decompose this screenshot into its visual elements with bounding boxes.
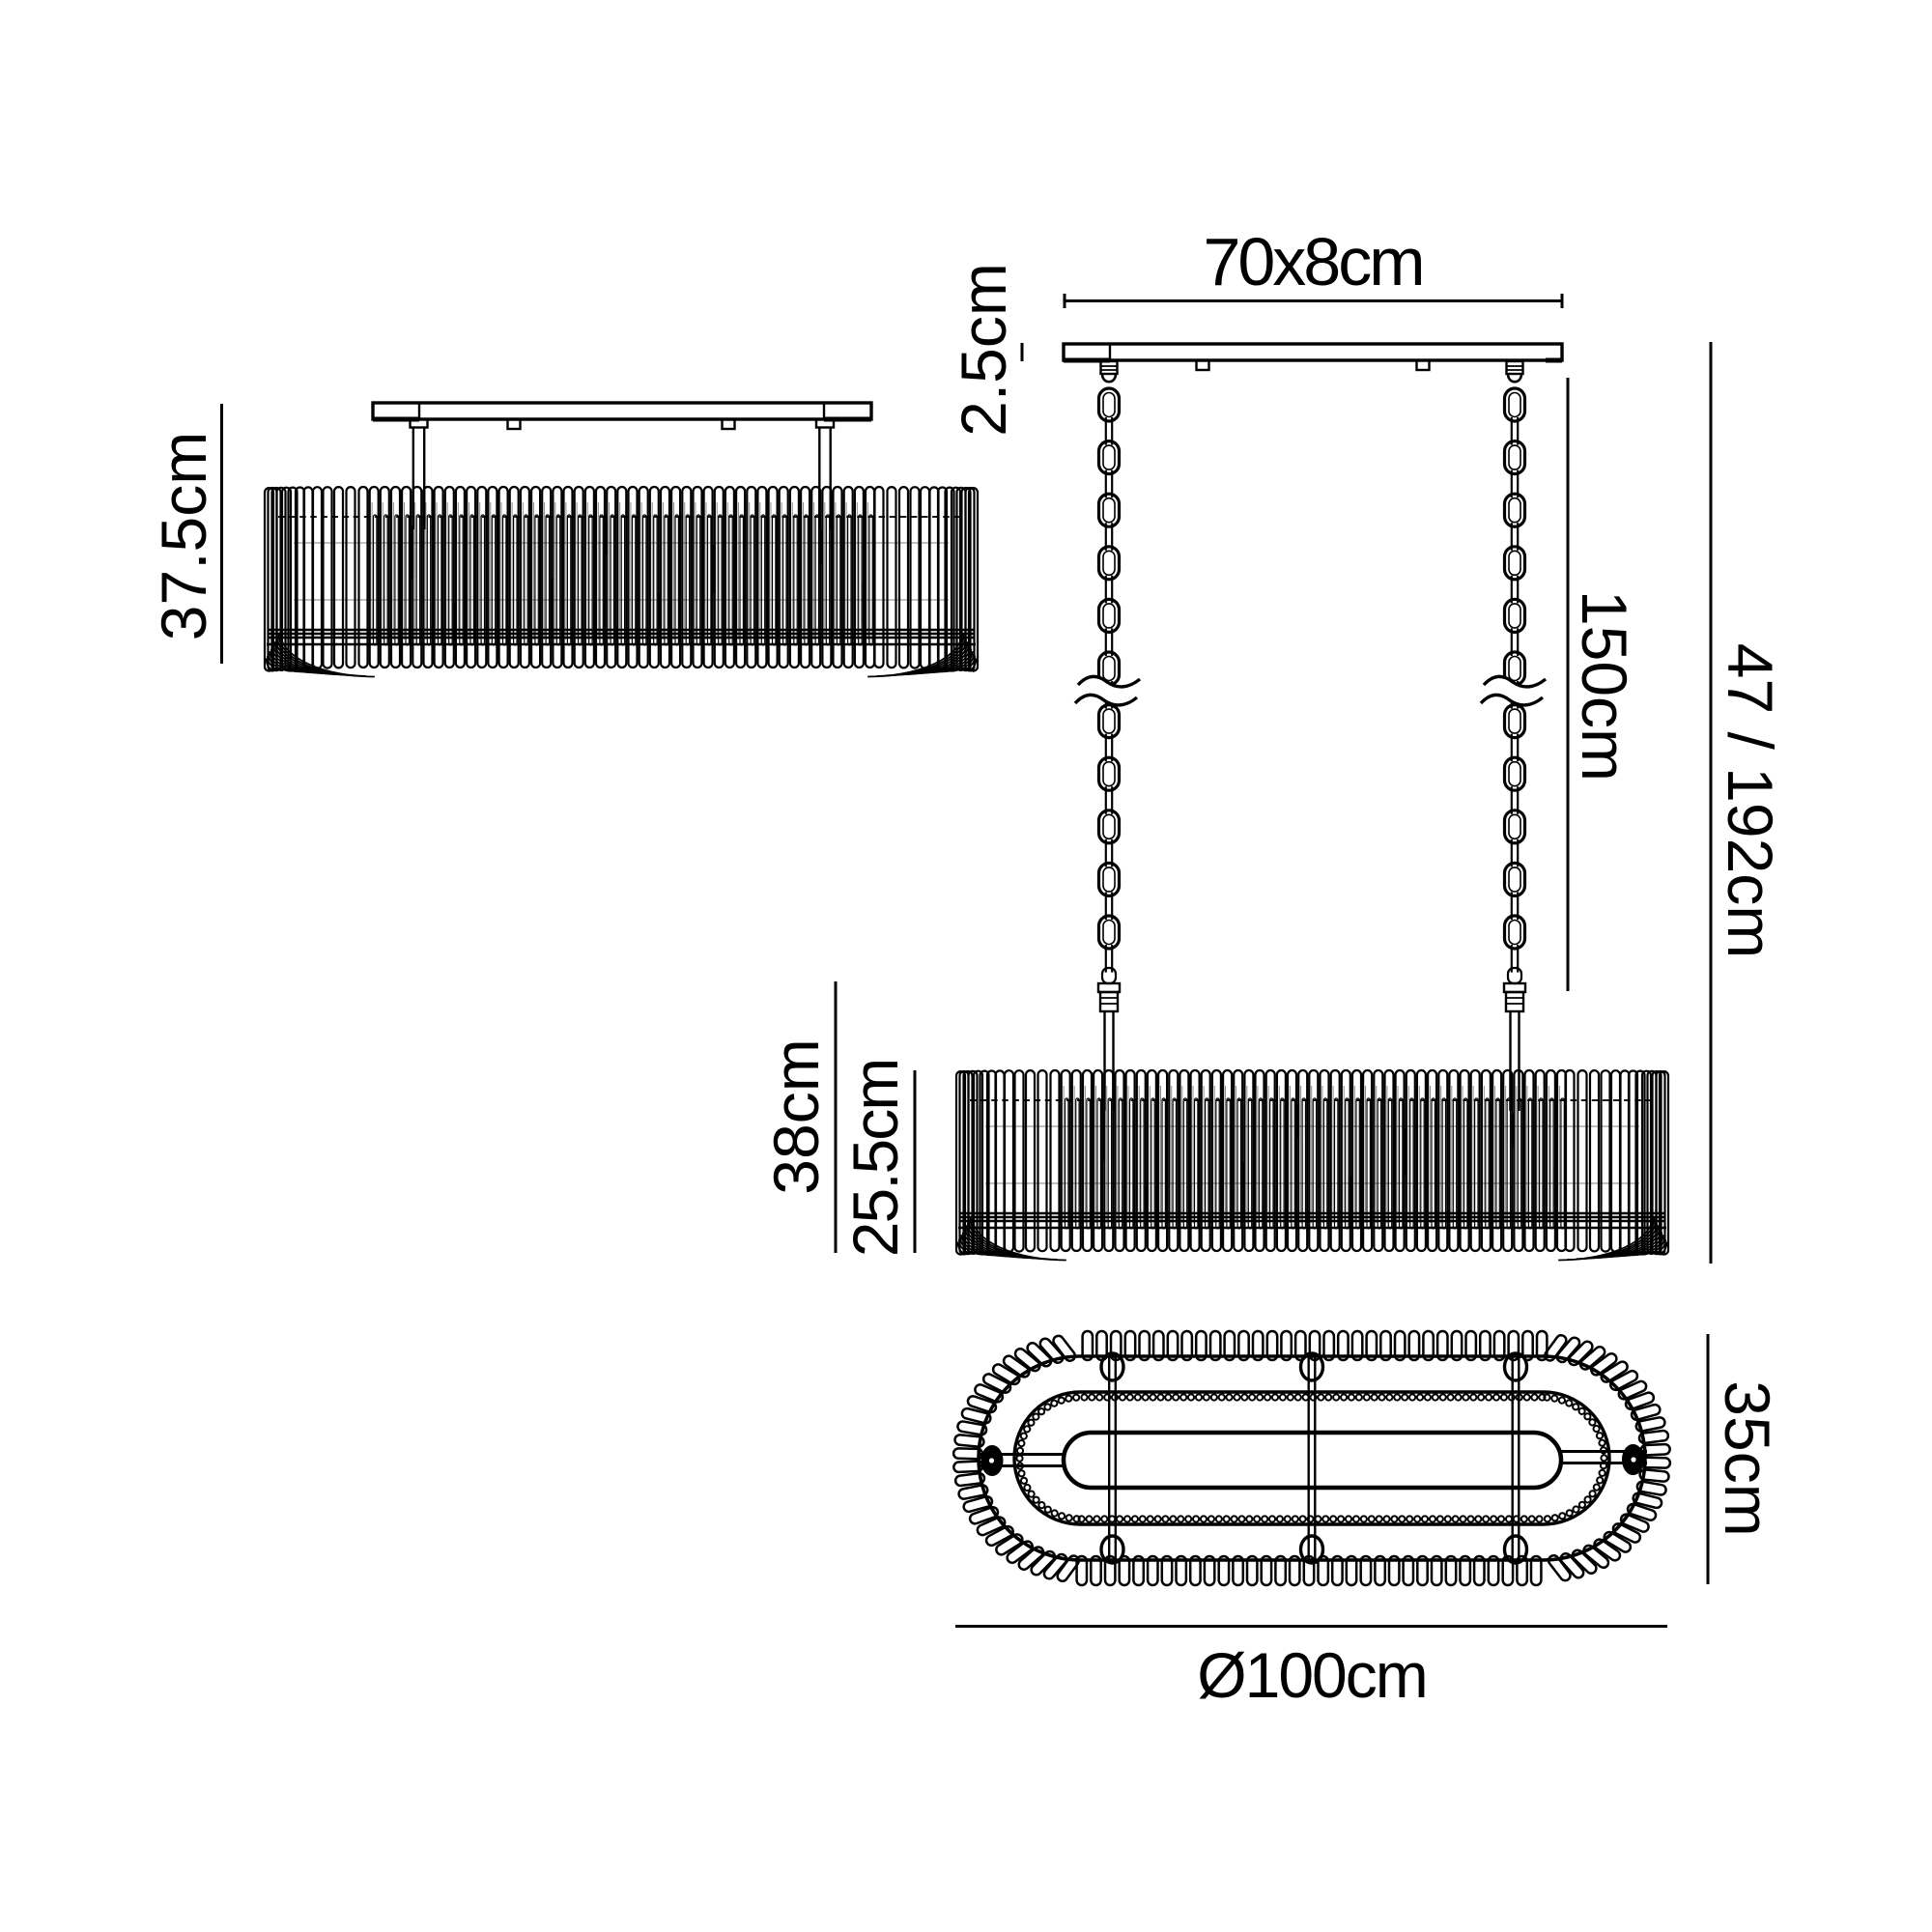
svg-text:2.5cm: 2.5cm <box>948 263 1019 437</box>
svg-text:25.5cm: 25.5cm <box>839 1060 911 1257</box>
svg-text:35cm: 35cm <box>1712 1380 1783 1536</box>
svg-text:Ø100cm: Ø100cm <box>1197 1639 1426 1711</box>
svg-text:150cm: 150cm <box>1569 590 1640 781</box>
svg-text:70x8cm: 70x8cm <box>1203 224 1422 299</box>
svg-text:47 / 192cm: 47 / 192cm <box>1715 643 1786 959</box>
svg-text:37.5cm: 37.5cm <box>148 432 219 640</box>
svg-text:38cm: 38cm <box>760 1038 832 1194</box>
